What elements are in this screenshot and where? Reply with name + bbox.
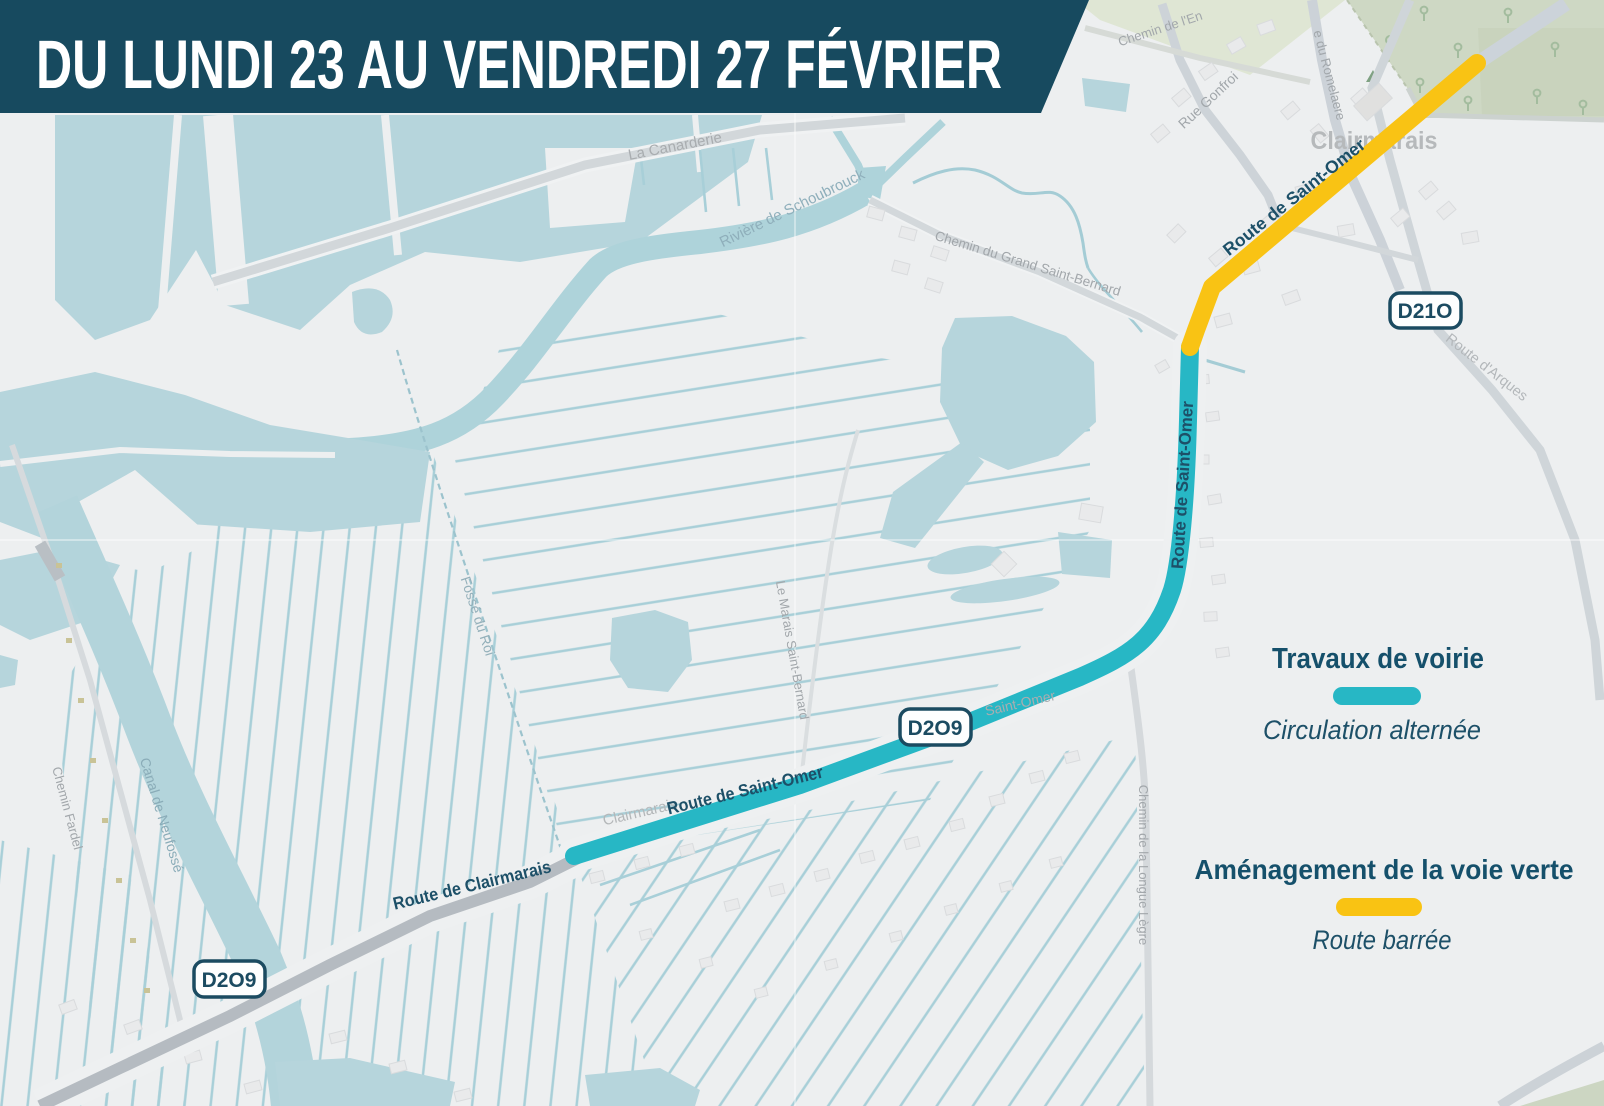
svg-text:DU LUNDI 23 AU VENDREDI 27 FÉV: DU LUNDI 23 AU VENDREDI 27 FÉVRIER: [36, 26, 1002, 103]
svg-text:Route barrée: Route barrée: [1313, 925, 1452, 955]
svg-text:Circulation alternée: Circulation alternée: [1263, 715, 1481, 745]
svg-text:Chemin de la Longue Lègre: Chemin de la Longue Lègre: [1136, 785, 1151, 945]
svg-text:Aménagement de la voie verte: Aménagement de la voie verte: [1195, 854, 1574, 885]
svg-text:D2O9: D2O9: [908, 717, 963, 740]
svg-text:D21O: D21O: [1398, 300, 1453, 323]
svg-text:Travaux de voirie: Travaux de voirie: [1272, 643, 1484, 675]
svg-text:D2O9: D2O9: [202, 969, 257, 992]
